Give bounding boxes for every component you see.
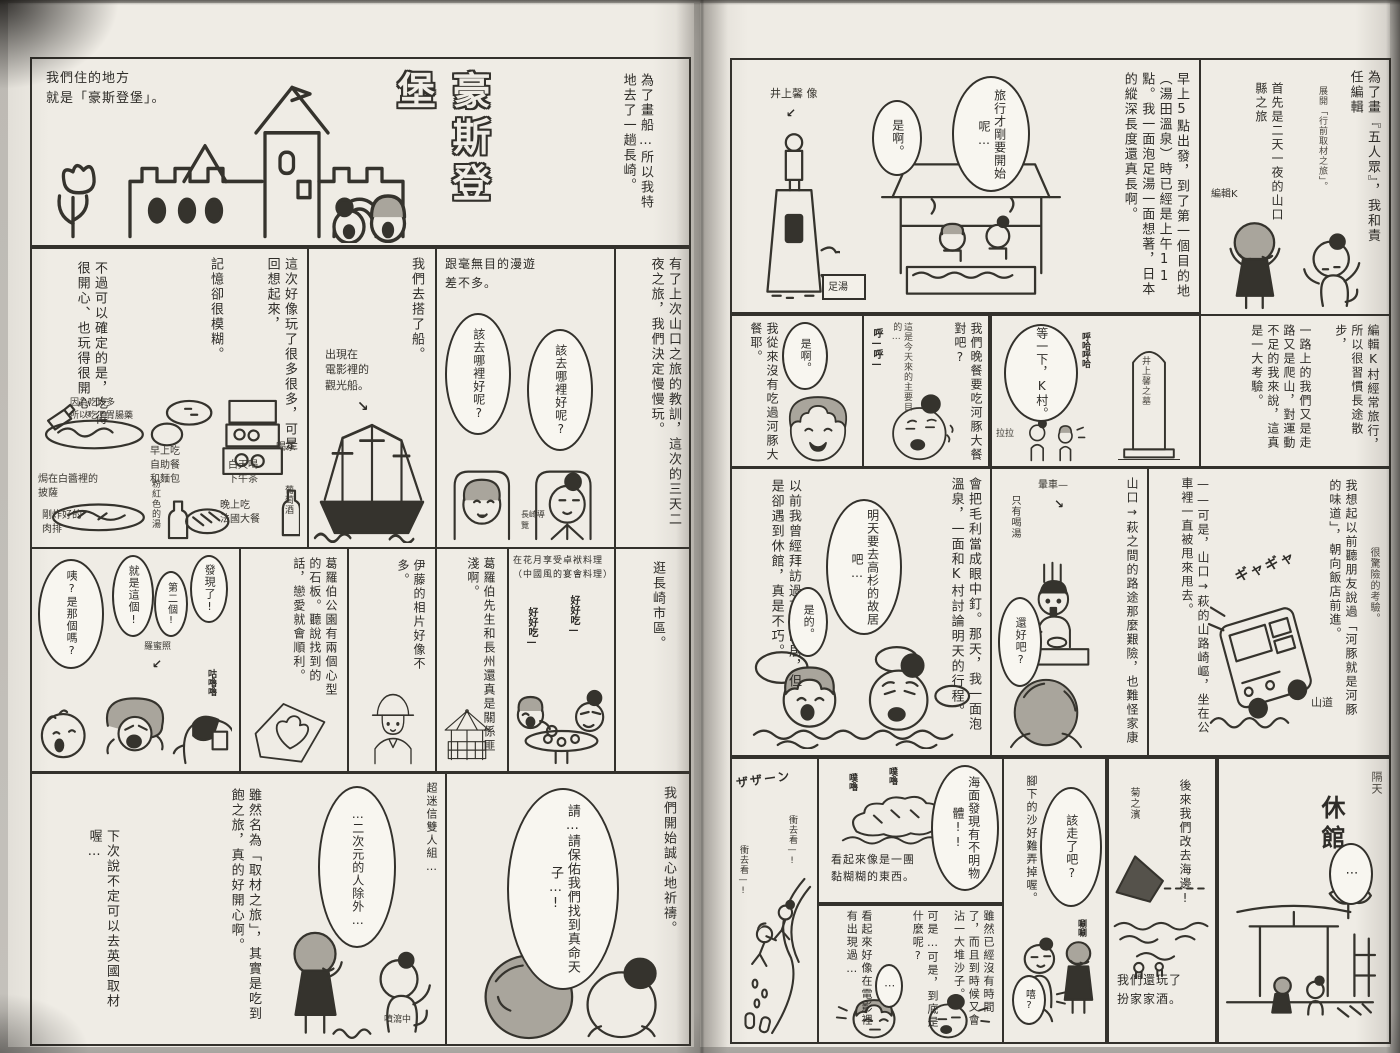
helmetMan-drawing	[363, 677, 423, 765]
speech-bubble: 就是這個!	[112, 555, 154, 637]
panel-R2a: 我從來沒有吃過河豚大餐耶。是啊。	[730, 314, 864, 468]
panel-L4a: 超迷信雙人組……二次元的人除外…雖然名為「取材之旅」，其實是吃到飽之旅，真的好開…	[30, 772, 447, 1046]
panel-R2d: 編輯K村經常旅行，所以很習慣長途散步，一路上的我們又是走路又是爬山，對運動不足的…	[1199, 314, 1391, 468]
arrow-to-statue: ↙	[786, 106, 800, 120]
panel-L4b: 我們開始誠心地祈禱。請…請保佑我們找到真命天子…!	[445, 772, 691, 1046]
hand-note: 喝茶	[276, 441, 302, 455]
caption: 我們開始誠心地祈禱。	[635, 786, 677, 938]
caption-small: 很驚險的考驗。	[1363, 547, 1379, 651]
panel-R3b: 山口→萩之間的路途那麼艱險，也難怪家康暈車—↘只有喝湯還好吧?	[990, 467, 1149, 757]
bubble-text: ⋯	[1343, 866, 1360, 882]
caption: 跟毫無目的漫遊 差不多。	[445, 255, 565, 291]
bubble-text: ⋯	[882, 979, 896, 993]
speech-bubble: 請…請保佑我們找到真命天子…!	[507, 788, 619, 990]
speech-bubble: 咦?是那個嗎?	[38, 559, 104, 669]
speech-bubble: 還好吧?	[998, 597, 1042, 687]
hand-note: 葡萄酒	[282, 485, 295, 529]
book-cover-label: 長崎導覽	[521, 509, 551, 531]
caption: 後來我們改去海邊!	[1151, 779, 1193, 917]
caption: 記憶卻很模糊。	[202, 257, 224, 375]
speech-bubble: 是啊。	[872, 100, 922, 176]
sfx-text: 好好吃—	[567, 595, 581, 657]
panel-R4c: 腳下的沙好難弄掉喔。該走了吧?唰唰嘻?	[1002, 757, 1109, 1044]
caption: 有了上次山口之旅的教訓，這次的三天二夜之旅，我們決定慢慢玩。	[624, 257, 682, 539]
bubble-text: 就是這個!	[126, 565, 140, 627]
sfx-text: 唰唰	[1076, 919, 1088, 957]
caption: 雖然已經沒有時間了，而且到時候又會沾一大堆沙子。	[941, 910, 995, 1036]
panel-R3a: 會把毛利當成眼中釘。那天，我一面泡溫泉，一面和K村討論明天的行程。以前我曾經拜訪…	[730, 467, 992, 757]
speech-bubble: ⋯	[1329, 843, 1373, 905]
caption: 下次說不定可以去英國取材喔…	[60, 829, 120, 1035]
bubble-text: 請…請保佑我們找到真命天子…!	[546, 790, 580, 988]
speech-bubble: …二次元的人除外…	[318, 786, 396, 948]
hand-note: 因為吃太多 所以吃了胃腸藥	[70, 397, 156, 423]
panel-L3c: 伊藤的相片好像不多。	[347, 547, 437, 773]
speech-bubble: 該去哪裡好呢?	[445, 313, 511, 435]
caption: 會把毛利當成眼中釘。那天，我一面泡溫泉，一面和K村討論明天的行程。	[910, 477, 982, 739]
hand-note: 焗在白醬裡的 披薩	[38, 473, 112, 501]
bubble-text: 海面發現有不明物體!!	[949, 767, 980, 889]
speech-bubble: 是啊。	[782, 322, 828, 390]
caption: 我從來沒有吃過河豚大餐耶。	[738, 322, 780, 462]
caption: 在花月享受卓袱料理 （中國風的宴會料理）	[513, 555, 611, 589]
caption-small: 隔天	[1367, 771, 1383, 815]
banquet-drawing	[513, 667, 610, 767]
caption: 以前我曾經拜訪過高杉故居，但是卻遇到休館，真是不巧。	[740, 479, 802, 691]
caption: 可是…可是，到底是什麼呢?	[903, 910, 939, 1032]
mountain-road-label: 山道	[1311, 695, 1337, 709]
caption: 這次好像玩了很多很多，可是回想起來，	[246, 257, 298, 457]
caption: 我們晚餐要吃河豚大餐對吧?	[930, 322, 984, 462]
beach-name-label: 菊之濱	[1127, 787, 1141, 843]
bubble-text: 咦?是那個嗎?	[64, 570, 78, 658]
hand-note: 噴瀉中	[384, 1014, 418, 1026]
caption: 為了畫船…所以我特地去了一趟長崎。	[588, 73, 654, 223]
panel-L3b: 葛羅伯公園有兩個心型的石板。聽說找到的話，戀愛就會順利。	[239, 547, 349, 773]
panel-R1a: 井上馨 像↙足湯是啊。旅行才剛要開始呢…早上5點出發，到了第一個目的地（湯田溫泉…	[730, 58, 1201, 314]
bubble-text: 明天要去高杉的故居吧…	[848, 501, 879, 633]
sfx-text: ザザーン	[735, 764, 813, 792]
hand-note: 晚上吃 法國大餐	[220, 499, 272, 527]
panel-L1: 我們住的地方 就是「豪斯登堡」。豪斯登堡為了畫船…所以我特地去了一趟長崎。	[30, 57, 691, 249]
speech-bubble: 明天要去高杉的故居吧…	[826, 499, 902, 635]
caption: 伊藤的相片好像不多。	[385, 559, 427, 683]
caption: 為了畫『五人眾』，我和責任編輯	[1331, 70, 1381, 248]
caption: 山口→萩之間的路途那麼艱險，也難怪家康	[1092, 477, 1140, 745]
speech-bubble: 該走了吧?	[1040, 787, 1102, 907]
bubble-text: 該去哪裡好呢?	[470, 328, 486, 421]
hand-note: 出現在 電影裡的 觀光船。	[325, 347, 379, 395]
panel-L2d: 跟毫無目的漫遊 差不多。該去哪裡好呢?該去哪裡好呢?長崎導覽	[435, 245, 616, 549]
hand-note: 剛炸好的 肉排	[42, 509, 92, 537]
bubble-text: 嘻?	[1023, 989, 1036, 1012]
faceCurly-drawing	[778, 376, 858, 464]
speech-bubble: 是的。	[788, 587, 828, 657]
sfx-text: 呼—呼—	[870, 328, 884, 398]
panel-R2b: 呼—呼—這是今天來的主要目的…我們晚餐要吃河豚大餐對吧?	[862, 314, 992, 468]
bubble-text: …二次元的人除外…	[349, 807, 365, 928]
bubble-text: 旅行才剛要開始呢…	[975, 78, 1006, 190]
hand-note: 衝去看—!	[737, 845, 750, 915]
bubble-text: 是啊。	[798, 338, 812, 374]
caption: 早上5點出發，到了第一個目的地（湯田溫泉）時已經是上午11點。我一面泡足湯一面想…	[1050, 72, 1190, 308]
ship-drawing	[313, 415, 431, 543]
editor-k-label: 編輯K	[1211, 188, 1245, 200]
caption-small: 這是今天來的主要目的…	[886, 322, 912, 414]
sfx-text: 好好吃—	[525, 607, 539, 669]
bubble-text: 發現了!	[202, 564, 216, 614]
panel-L2c: 我們去搭了船。出現在 電影裡的 觀光船。↘	[307, 245, 437, 549]
caption: 超迷信雙人組…	[418, 782, 438, 908]
bubble-text: 還好吧?	[1013, 617, 1027, 667]
panel-R1b: 為了畫『五人眾』，我和責任編輯展開「行前取材之旅」。首先是二天一夜的山口縣之旅編…	[1199, 58, 1391, 316]
hand-note: 粉紅色的湯	[148, 479, 162, 541]
panel-R4b1: 海面發現有不明物體!!噗嚕噗嚕看起來像是一團 黏糊糊的東西。	[817, 757, 1004, 906]
sfx-text: 噗嚕	[887, 767, 899, 799]
panel-R2c: 等一下，K村。呼哈呼哈井上馨之墓拉拉	[988, 314, 1201, 468]
panel-R3c: ——可是，山口→萩的山路崎嶇，坐在公車裡一直被甩來甩去。我想起以前聽朋友說過「河…	[1147, 467, 1391, 757]
panel-L2a: 這次好像玩了很多很多，可是回想起來，記憶卻很模糊。不過可以確定的是，吃得很開心、…	[30, 245, 309, 549]
caption: 葛羅伯公園有兩個心型的石板。聽說找到的話，戀愛就會順利。	[251, 557, 339, 709]
panel-R4a: ザザーン衝去看—!衝去看—!	[730, 757, 819, 1044]
speech-bubble: 旅行才剛要開始呢…	[952, 76, 1030, 192]
bubble-text: 是的。	[801, 604, 815, 640]
speech-bubble: 嘻?	[1012, 975, 1046, 1025]
footbath-sign: 足湯	[822, 274, 866, 300]
caption: ——可是，山口→萩的山路崎嶇，坐在公車裡一直被甩來甩去。	[1155, 477, 1211, 745]
bubble-text: 該走了吧?	[1063, 814, 1079, 881]
caption-huis-ten-bosch: 我們住的地方 就是「豪斯登堡」。	[46, 69, 196, 113]
hand-note: 羅蜜照	[144, 641, 176, 653]
manga-spread: 我們住的地方 就是「豪斯登堡」。豪斯登堡為了畫船…所以我特地去了一趟長崎。這次好…	[0, 0, 1400, 1053]
hand-note: 暈車—	[1038, 479, 1074, 491]
sfx-text: 呼哈呼哈	[1078, 332, 1092, 394]
panel-R4b2: 雖然已經沒有時間了，而且到時候又會沾一大堆沙子。可是…可是，到底是什麼呢?看起來…	[817, 902, 1004, 1044]
panel-L3f: 逛長崎市區。	[614, 547, 691, 773]
smallPair-drawing	[1018, 416, 1092, 462]
caption: 編輯K村經常旅行，所以很習慣長途散步，	[1321, 324, 1381, 460]
bubble-text: 第二個!	[165, 582, 178, 627]
hand-note: 拉拉	[996, 428, 1020, 440]
speech-bubble: 等一下，K村。	[1004, 324, 1078, 422]
hand-note: 衝去看—!	[786, 815, 799, 885]
caption: 一路上的我們又是走路又是爬山，對運動不足的我來說，這真是一大考驗。	[1211, 324, 1313, 460]
sfx-text: 咕嚕嚕	[204, 669, 218, 717]
panel-L2e: 有了上次山口之旅的教訓，這次的三天二夜之旅，我們決定慢慢玩。	[614, 245, 691, 549]
panel-L3a: 發現了!第二個!就是這個!咦?是那個嗎?羅蜜照↙咕嚕嚕	[30, 547, 241, 773]
panel-L3e: 在花月享受卓袱料理 （中國風的宴會料理）好好吃—好好吃—	[507, 547, 616, 773]
speech-bubble: 發現了!	[190, 555, 228, 623]
bubble-text: 該去哪裡好呢?	[552, 344, 568, 437]
arrow-to-ship: ↘	[357, 399, 373, 415]
speech-bubble: ⋯	[875, 964, 903, 1008]
caption: 我們還玩了 扮家家酒。	[1117, 971, 1207, 1007]
caption: 看起來好像在電影裡有出現過…	[827, 910, 873, 1036]
caption-small: 展開「行前取材之旅」。	[1313, 86, 1327, 232]
hand-note: 白天喝 下午茶	[228, 459, 270, 487]
speech-bubble: 海面發現有不明物體!!	[931, 765, 999, 891]
bubble-text: 是啊。	[889, 119, 905, 158]
caption: 雖然名為「取材之旅」，其實是吃到飽之旅，真的好開心啊。	[180, 788, 262, 1024]
threeChars-drawing	[38, 667, 232, 765]
arrow-to-photo: ↙	[152, 657, 166, 671]
caption: 我們去搭了船。	[401, 257, 425, 369]
caption: 逛長崎市區。	[640, 561, 666, 681]
caption: 葛羅伯先生和長州還真是關係匪淺啊。	[449, 557, 497, 753]
logo-title-huis-ten-bosch: 豪斯登堡	[436, 71, 496, 243]
caption: 腳下的沙好難弄掉喔。	[1010, 775, 1038, 909]
panel-R4d: 菊之濱後來我們改去海邊!我們還玩了 扮家家酒。	[1105, 757, 1219, 1044]
panel-R4e: 隔天休館。⋯	[1215, 757, 1391, 1044]
grave-inscription: 井上馨之墓	[1136, 356, 1150, 438]
bubble-text: 等一下，K村。	[1033, 327, 1049, 420]
caption: 看起來像是一團 黏糊糊的東西。	[831, 851, 931, 891]
caption: 我想起以前聽朋友說過「河豚就是河豚的味道」，朝向飯店前進。	[1285, 479, 1359, 723]
statue-label: 井上馨 像	[770, 86, 830, 100]
caption: 首先是二天一夜的山口縣之旅	[1241, 82, 1285, 226]
arrow-to-carsick: ↘	[1054, 497, 1068, 511]
speech-bubble: 第二個!	[154, 571, 188, 637]
sfx-text: 噗嚕	[847, 773, 859, 805]
speech-bubble: 該去哪裡好呢?	[527, 329, 593, 451]
hand-note: 只有喝湯	[1008, 495, 1022, 553]
panel-L3d: 葛羅伯先生和長州還真是關係匪淺啊。	[435, 547, 509, 773]
